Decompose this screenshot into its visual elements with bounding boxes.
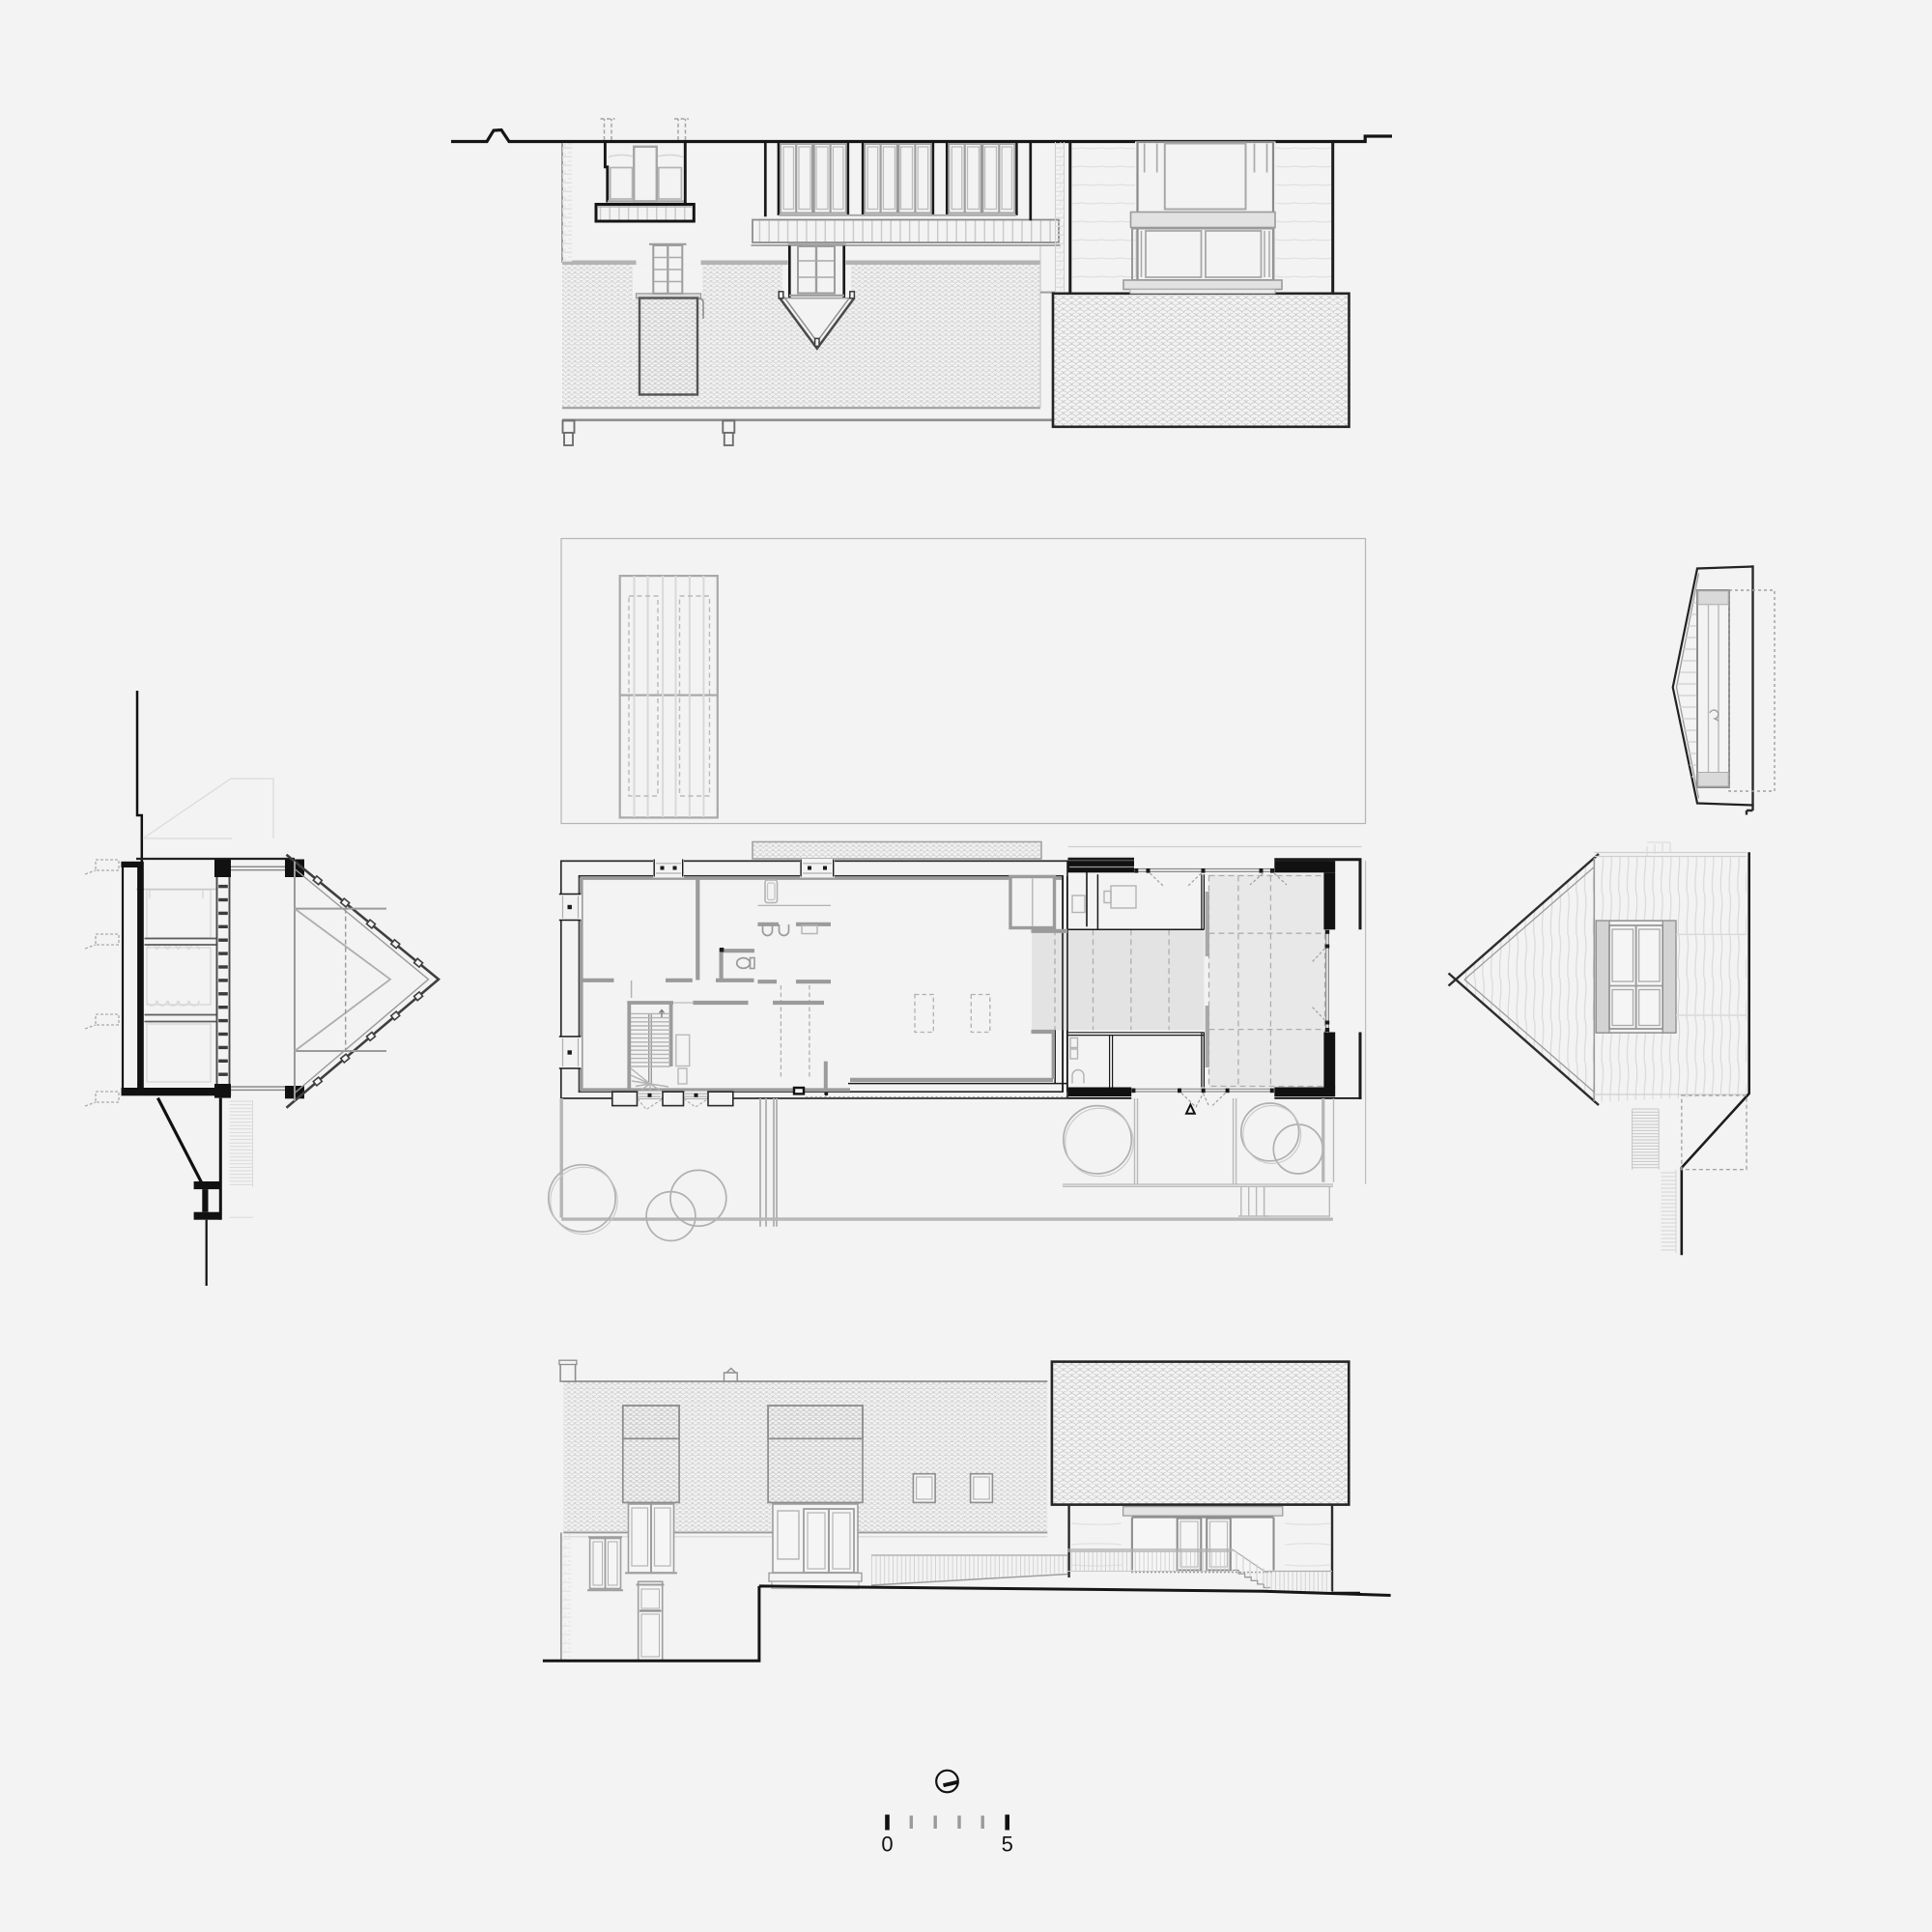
svg-text:0: 0 <box>881 1833 893 1857</box>
svg-text:5: 5 <box>1002 1833 1013 1857</box>
